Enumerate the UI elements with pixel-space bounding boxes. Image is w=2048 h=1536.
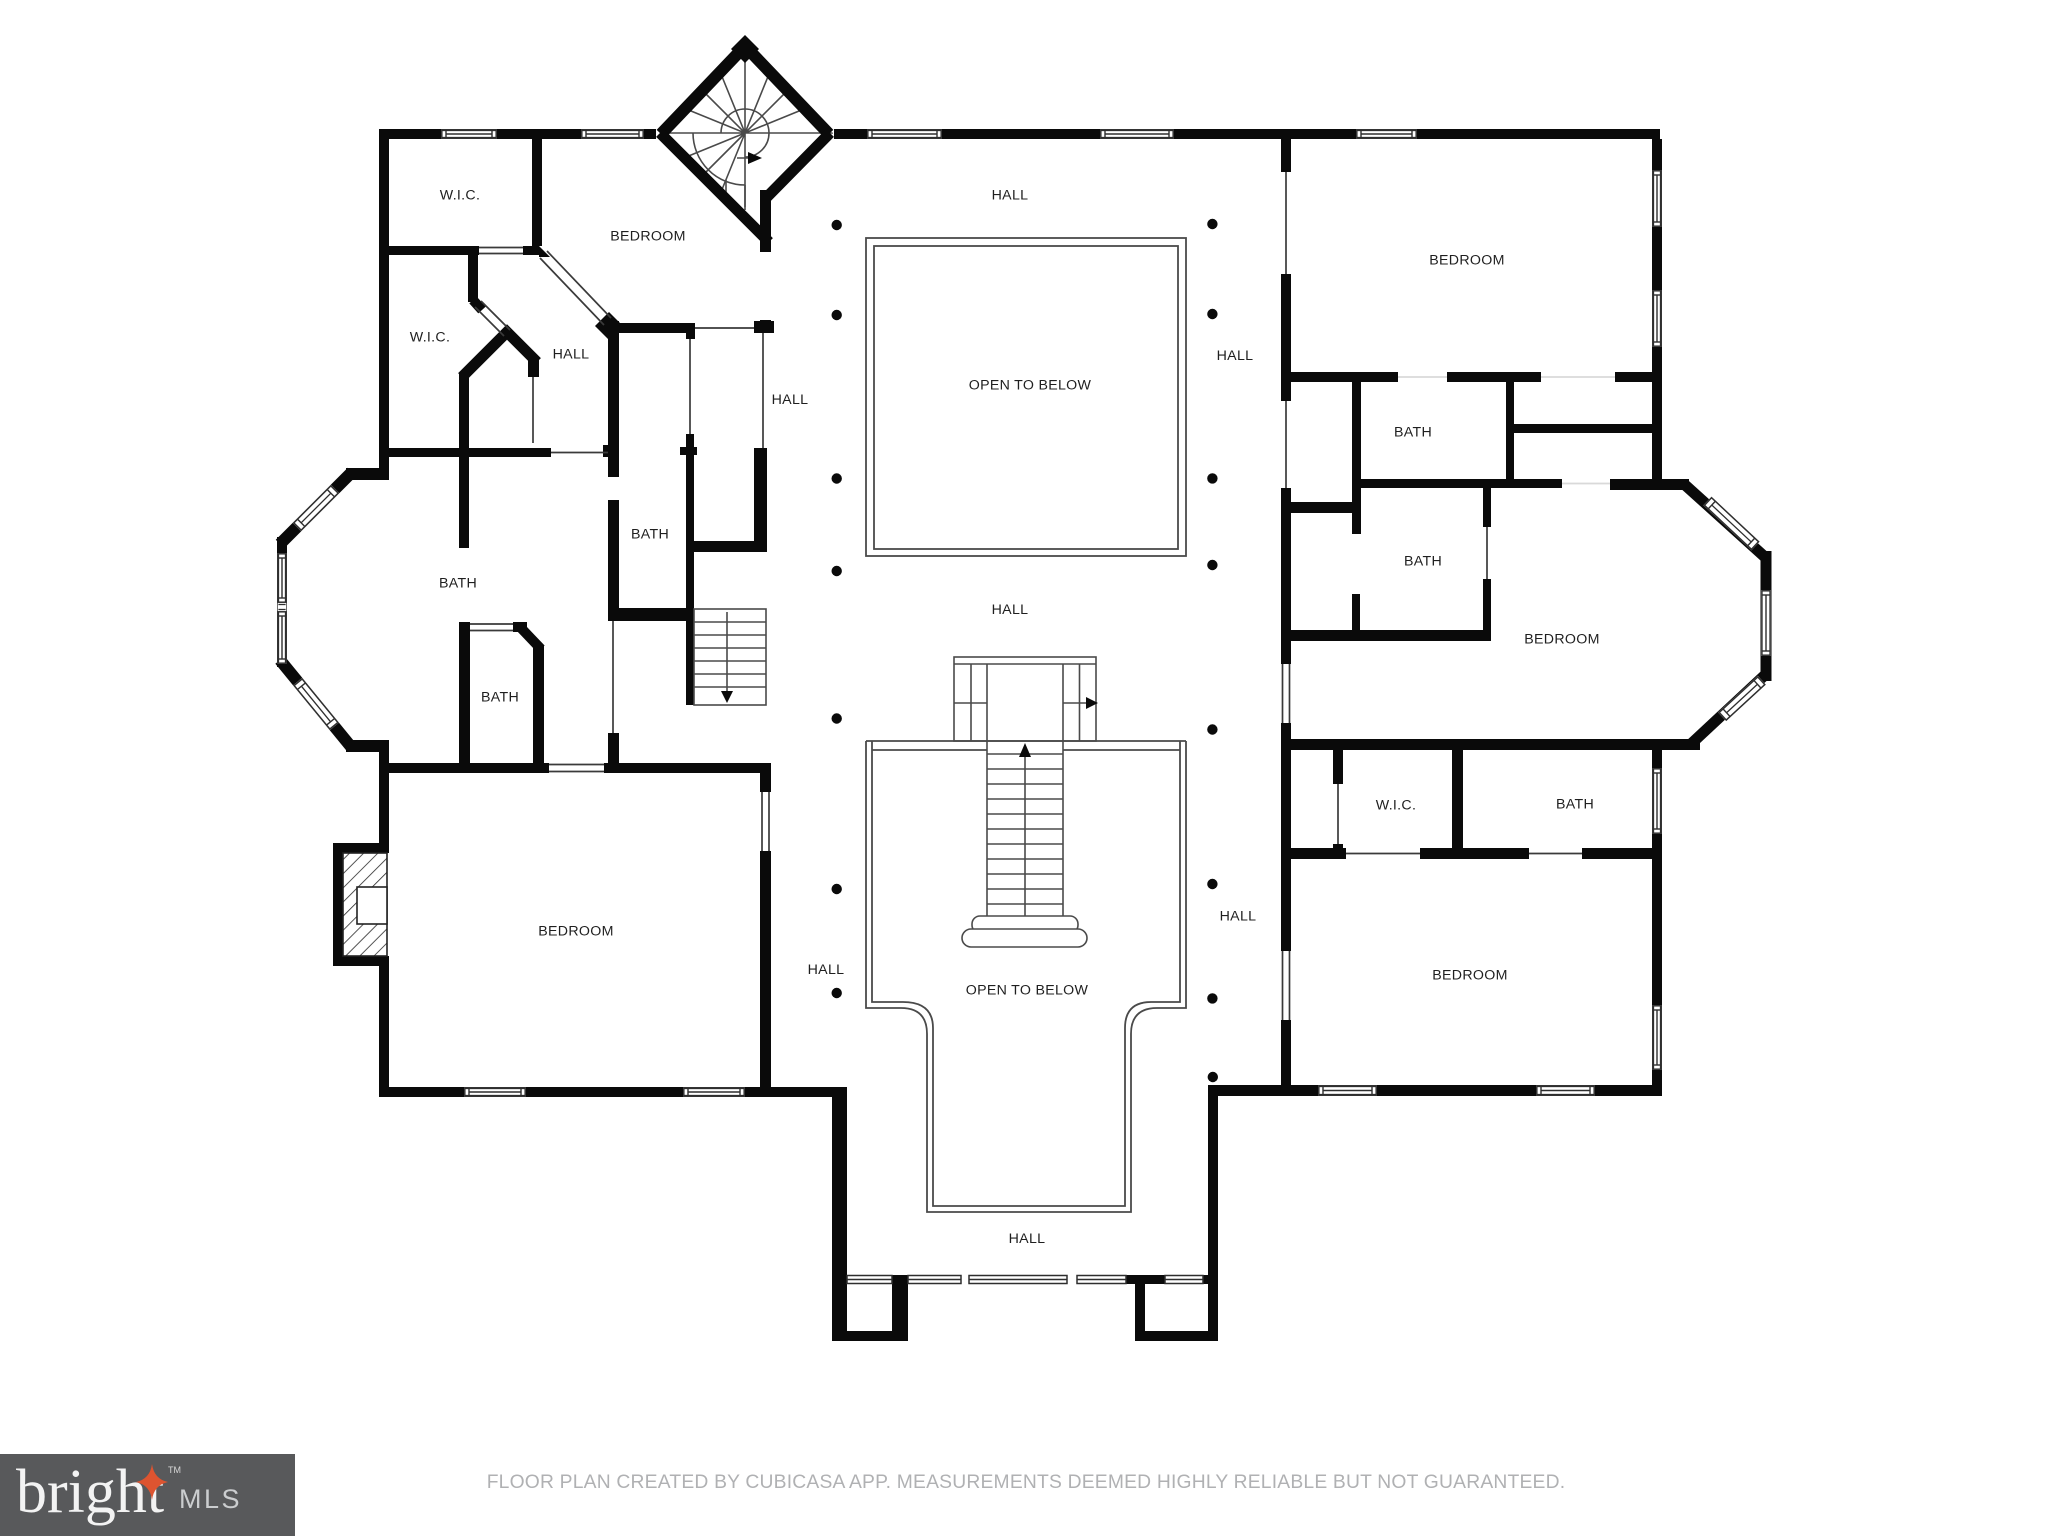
svg-text:BEDROOM: BEDROOM (538, 924, 613, 940)
svg-text:BATH: BATH (1556, 797, 1594, 813)
svg-text:MLS: MLS (179, 1484, 242, 1514)
svg-text:BEDROOM: BEDROOM (1429, 253, 1504, 269)
svg-text:bright: bright (16, 1458, 164, 1526)
svg-text:HALL: HALL (1009, 1231, 1046, 1247)
svg-text:HALL: HALL (808, 962, 845, 978)
svg-text:HALL: HALL (1217, 348, 1254, 364)
svg-text:HALL: HALL (772, 392, 809, 408)
svg-text:BATH: BATH (1404, 554, 1442, 570)
svg-text:BEDROOM: BEDROOM (1432, 968, 1507, 984)
svg-text:W.I.C.: W.I.C. (410, 330, 450, 346)
svg-text:HALL: HALL (553, 347, 590, 363)
svg-text:BEDROOM: BEDROOM (1524, 632, 1599, 648)
svg-text:FLOOR PLAN CREATED BY CUBICASA: FLOOR PLAN CREATED BY CUBICASA APP. MEAS… (487, 1472, 1566, 1493)
svg-text:W.I.C.: W.I.C. (440, 188, 480, 204)
svg-text:W.I.C.: W.I.C. (1376, 798, 1416, 814)
svg-text:OPEN TO BELOW: OPEN TO BELOW (969, 378, 1092, 394)
svg-text:HALL: HALL (1220, 909, 1257, 925)
svg-text:OPEN TO BELOW: OPEN TO BELOW (966, 983, 1089, 999)
svg-text:HALL: HALL (992, 602, 1029, 618)
svg-text:TM: TM (168, 1465, 181, 1475)
svg-text:HALL: HALL (992, 188, 1029, 204)
svg-text:BATH: BATH (439, 576, 477, 592)
svg-text:BATH: BATH (1394, 425, 1432, 441)
svg-text:BEDROOM: BEDROOM (610, 229, 685, 245)
svg-text:BATH: BATH (481, 690, 519, 706)
svg-text:BATH: BATH (631, 527, 669, 543)
